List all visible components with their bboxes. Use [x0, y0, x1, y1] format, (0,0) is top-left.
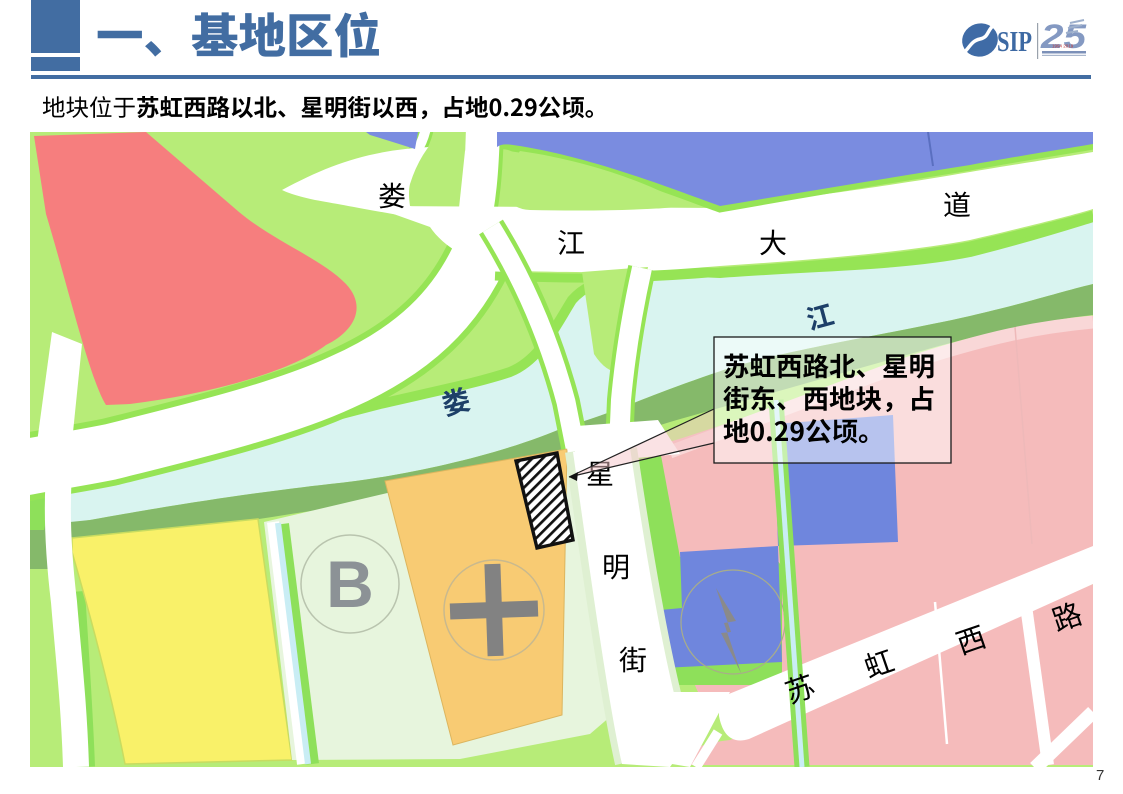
svg-text:SIP: SIP	[997, 27, 1032, 58]
svg-text:B: B	[326, 547, 374, 621]
svg-text:1994 2019: 1994 2019	[1052, 44, 1074, 49]
svg-text:25: 25	[1040, 18, 1087, 56]
